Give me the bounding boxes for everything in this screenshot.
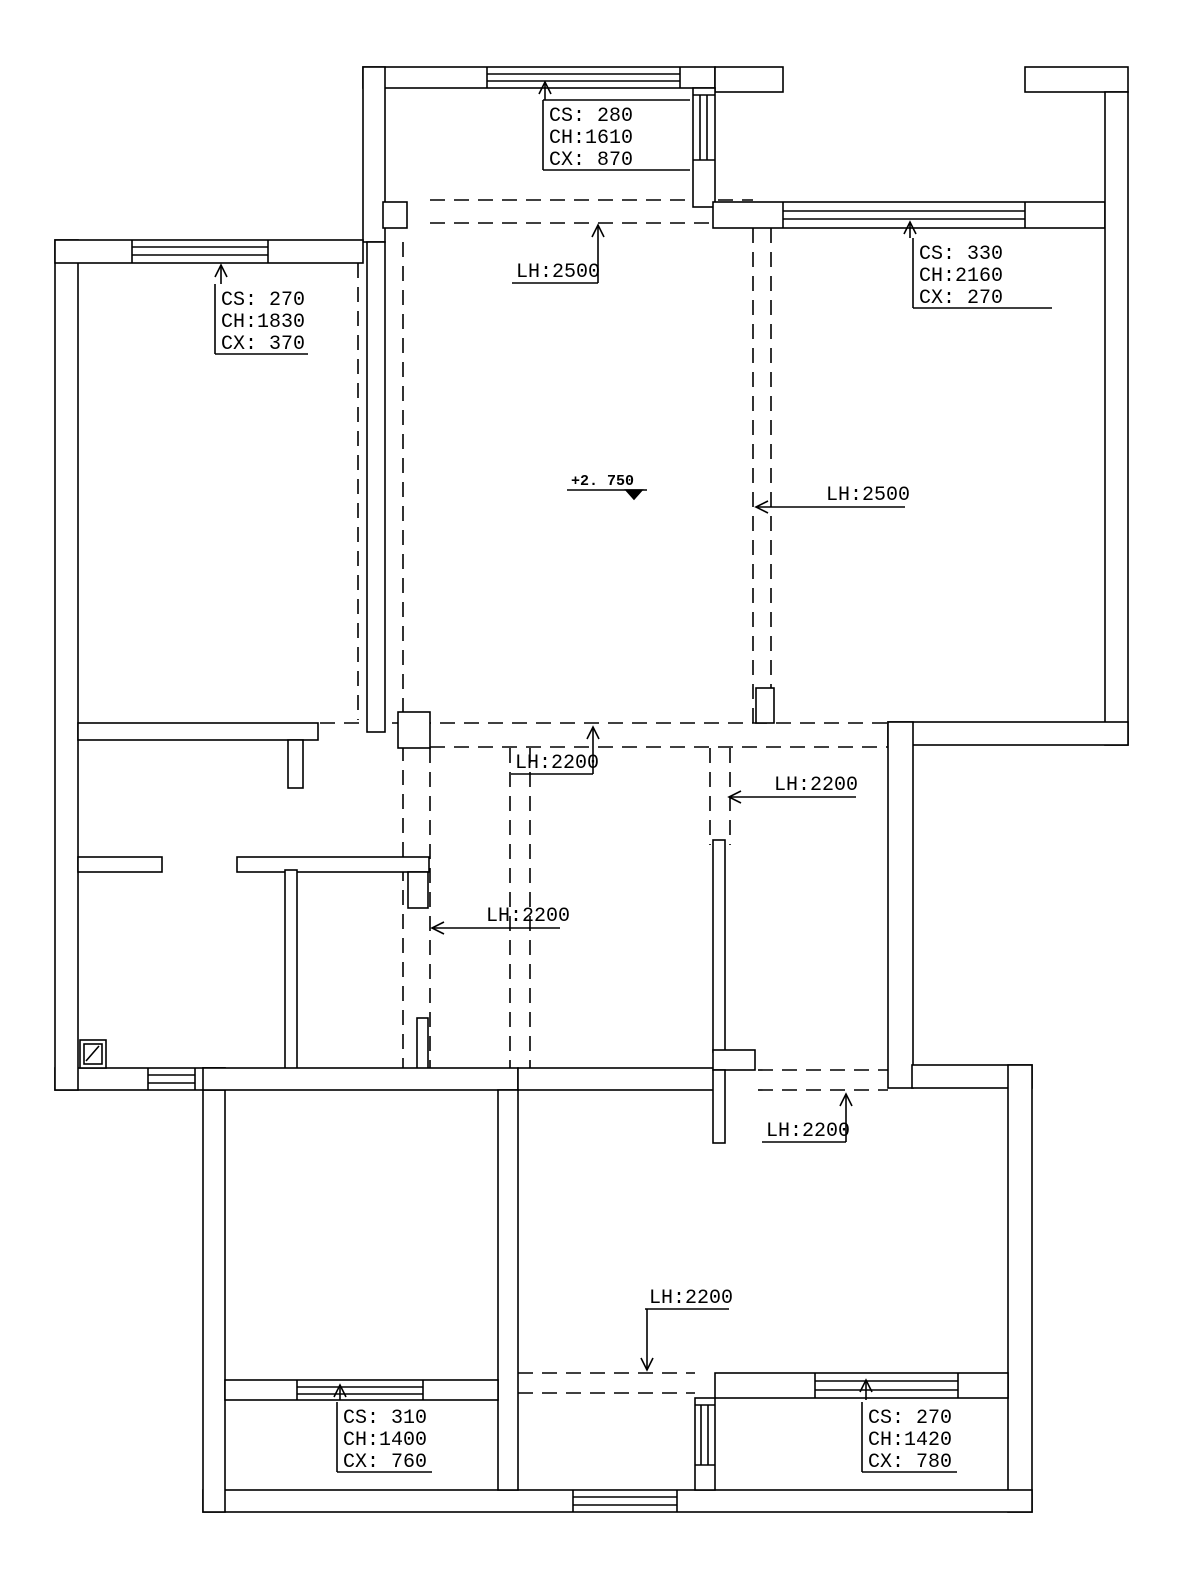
- text-labels: CS: 280 CH:1610 CX: 870 CS: 330 CH:2160 …: [221, 105, 1003, 1474]
- window-label-bottom-left-cx: CX: 760: [343, 1451, 427, 1474]
- elevation-triangle: [626, 490, 642, 499]
- window-label-bottom-right-ch: CH:1420: [868, 1429, 952, 1452]
- window-label-left-cs: CS: 270: [221, 289, 305, 312]
- window-label-top-right-cs: CS: 330: [919, 243, 1003, 266]
- floor-plan-canvas: CS: 280 CH:1610 CX: 870 CS: 330 CH:2160 …: [0, 0, 1200, 1576]
- window-label-top-center-ch: CH:1610: [549, 127, 633, 150]
- window-label-top-right-cx: CX: 270: [919, 287, 1003, 310]
- elevation-marker-text: +2. 750: [571, 473, 634, 490]
- flue-symbol: [80, 1040, 106, 1068]
- ceiling-height-label-center: LH:2200: [515, 752, 599, 775]
- window-label-bottom-right-cx: CX: 780: [868, 1451, 952, 1474]
- window-label-bottom-left-cs: CS: 310: [343, 1407, 427, 1430]
- ceiling-height-label-right: LH:2500: [826, 484, 910, 507]
- ceiling-height-label-center-right: LH:2200: [774, 774, 858, 797]
- window-label-bottom-left-ch: CH:1400: [343, 1429, 427, 1452]
- window-label-bottom-right-cs: CS: 270: [868, 1407, 952, 1430]
- floor-plan-page: CS: 280 CH:1610 CX: 870 CS: 330 CH:2160 …: [0, 0, 1200, 1576]
- window-label-top-center-cx: CX: 870: [549, 149, 633, 172]
- ceiling-height-label-center-left: LH:2200: [486, 905, 570, 928]
- ceiling-height-label-lower-right: LH:2200: [766, 1120, 850, 1143]
- window-label-left-ch: CH:1830: [221, 311, 305, 334]
- window-label-top-right-ch: CH:2160: [919, 265, 1003, 288]
- window-label-top-center-cs: CS: 280: [549, 105, 633, 128]
- ceiling-height-label-top: LH:2500: [516, 261, 600, 284]
- ceiling-height-label-bottom: LH:2200: [649, 1287, 733, 1310]
- window-label-left-cx: CX: 370: [221, 333, 305, 356]
